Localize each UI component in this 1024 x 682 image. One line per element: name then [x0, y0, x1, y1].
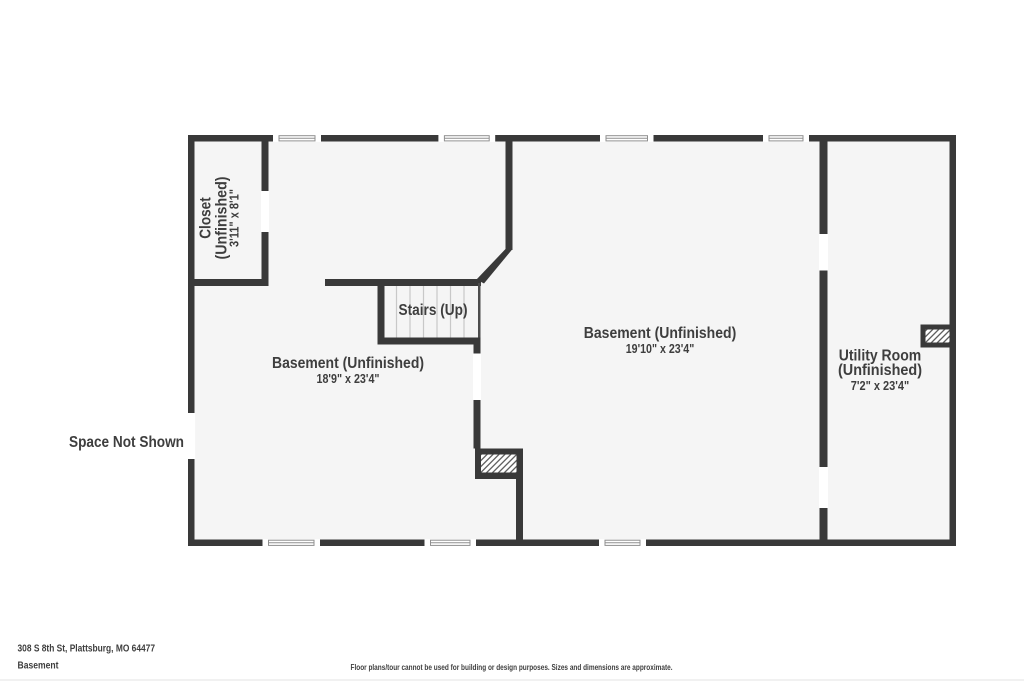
svg-text:Closet: Closet: [198, 197, 215, 239]
svg-text:Basement (Unfinished): Basement (Unfinished): [272, 355, 424, 372]
svg-text:Stairs (Up): Stairs (Up): [399, 302, 468, 319]
svg-text:7'2" x 23'4": 7'2" x 23'4": [851, 378, 910, 393]
svg-text:(Unfinished): (Unfinished): [838, 362, 922, 379]
svg-text:19'10" x 23'4": 19'10" x 23'4": [626, 341, 695, 356]
svg-text:18'9" x 23'4": 18'9" x 23'4": [317, 371, 380, 386]
svg-text:Floor plans/tour cannot be use: Floor plans/tour cannot be used for buil…: [351, 663, 673, 672]
svg-text:Basement (Unfinished): Basement (Unfinished): [584, 325, 737, 342]
svg-text:3'11" x 8'1": 3'11" x 8'1": [227, 189, 242, 247]
svg-text:308 S 8th St, Plattsburg, MO 6: 308 S 8th St, Plattsburg, MO 64477: [18, 644, 156, 655]
svg-text:Space Not Shown: Space Not Shown: [69, 434, 184, 451]
svg-text:Basement: Basement: [18, 661, 60, 672]
